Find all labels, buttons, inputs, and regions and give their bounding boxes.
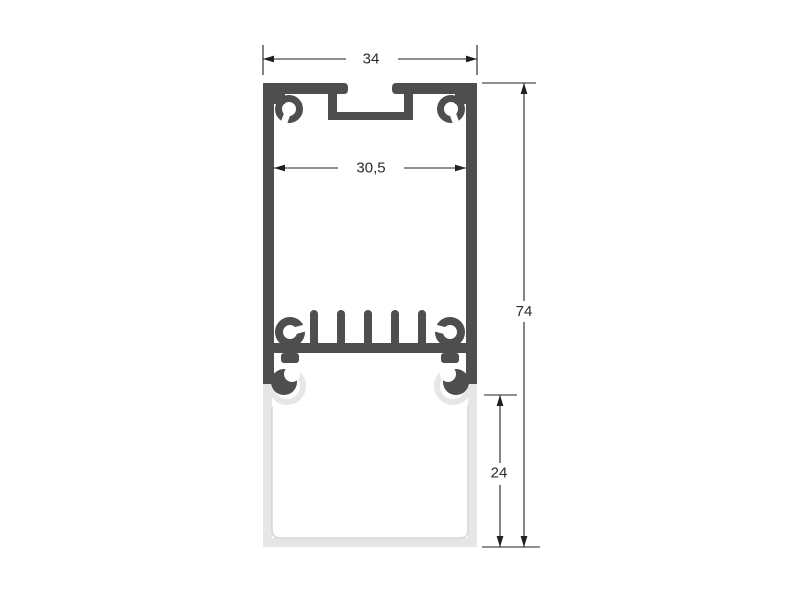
shelf-stub-right [441, 353, 459, 363]
slot-channel-bottom [328, 112, 413, 120]
heatsink-rib [418, 310, 426, 348]
heatsink-rib [337, 310, 345, 348]
drawing-canvas: 34 30,5 74 24 [0, 0, 800, 600]
dimension-label-diffuser-height: 24 [491, 465, 508, 482]
heatsink-rib [364, 310, 372, 348]
dimension-label-inner-width: 30,5 [356, 160, 385, 177]
retainer-groove-right [440, 366, 456, 382]
dimension-label-outer-width: 34 [363, 51, 380, 68]
dimension-label-overall-height: 74 [516, 303, 533, 320]
profile-technical-drawing: 34 30,5 74 24 [0, 0, 800, 600]
shelf-stub-left [281, 353, 299, 363]
retainer-groove-left [284, 366, 300, 382]
diffuser-wall-left [263, 380, 272, 547]
heatsink-rib [310, 310, 318, 348]
top-wall-right-segment [392, 83, 477, 94]
heatsink-rib [391, 310, 399, 348]
profile-wall-left [263, 83, 274, 384]
diffuser-bottom [263, 538, 477, 547]
top-wall-left-segment [263, 83, 348, 94]
profile-wall-right [466, 83, 477, 384]
diffuser-wall-right [468, 380, 477, 547]
